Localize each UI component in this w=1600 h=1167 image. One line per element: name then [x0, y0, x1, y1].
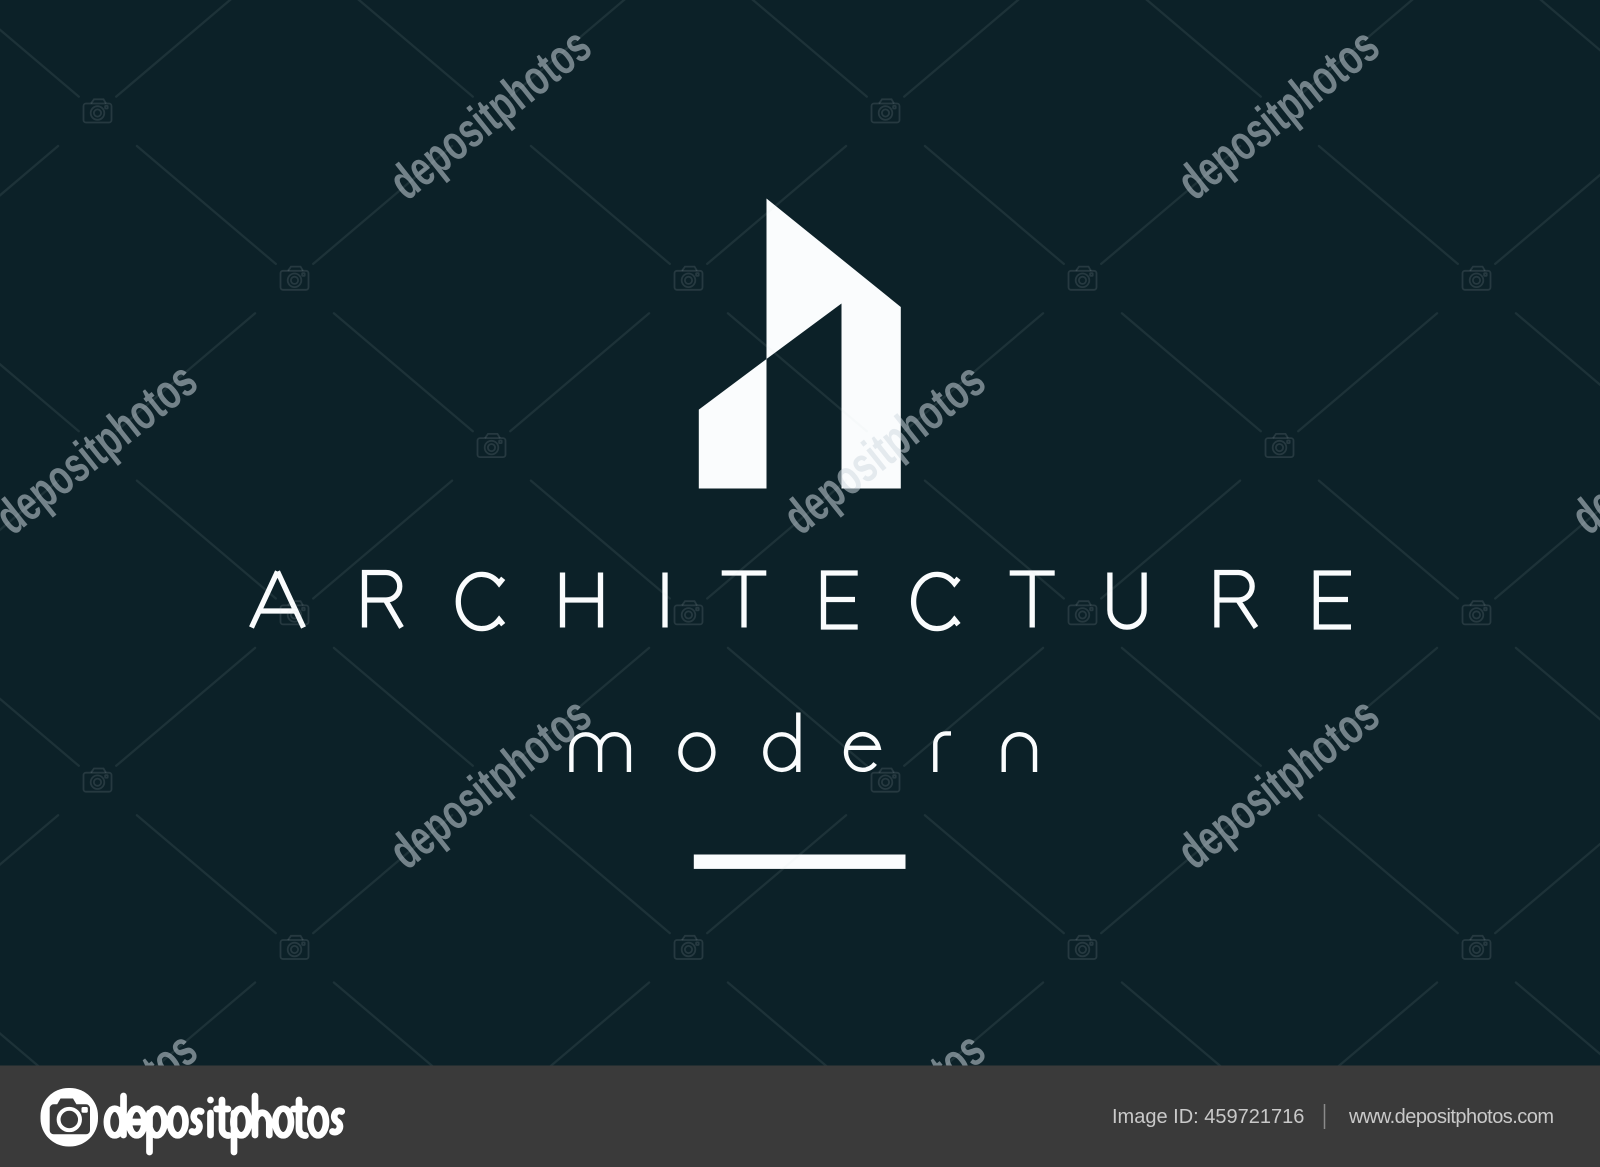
- svg-text:www.depositphotos.com: www.depositphotos.com: [1348, 1106, 1554, 1128]
- svg-text:Image ID: 459721716: Image ID: 459721716: [1112, 1106, 1304, 1128]
